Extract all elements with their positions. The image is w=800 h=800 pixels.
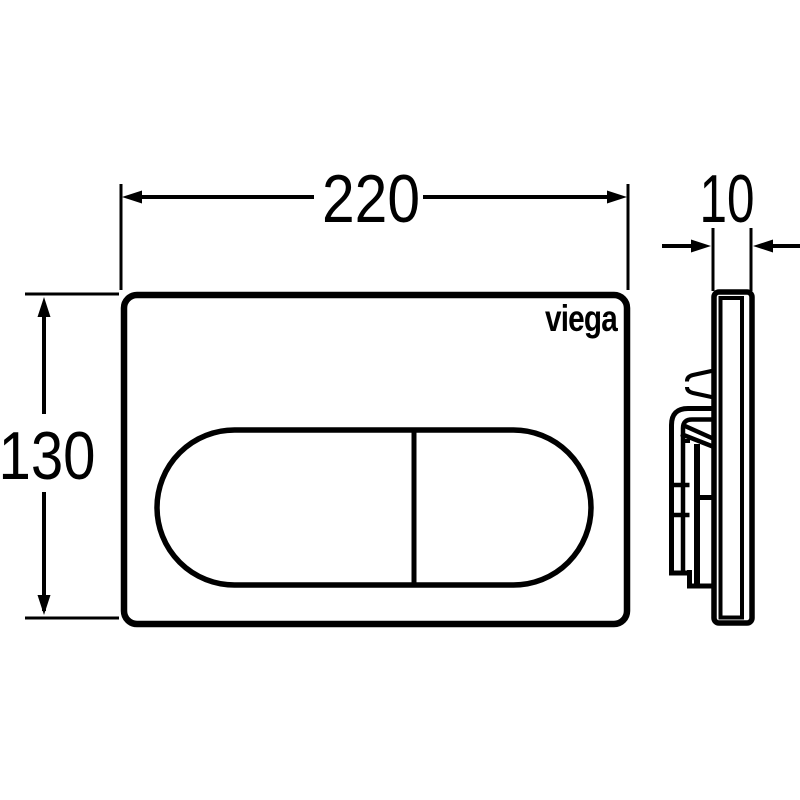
depth-arrow-left-icon bbox=[691, 240, 711, 253]
width-arrow-left-icon bbox=[122, 191, 142, 204]
width-arrow-right-icon bbox=[607, 191, 627, 204]
height-arrow-top-icon bbox=[38, 297, 51, 317]
depth-dim-label: 10 bbox=[700, 161, 755, 237]
height-dim-label: 130 bbox=[0, 418, 96, 494]
depth-arrow-right-icon bbox=[753, 240, 773, 253]
flush-plate-technical-drawing: 220 130 10 bbox=[0, 0, 800, 800]
width-dim-label: 220 bbox=[322, 161, 420, 237]
side-plate-profile-inner bbox=[721, 298, 743, 618]
height-arrow-bottom-icon bbox=[38, 595, 51, 615]
technical-drawing-page: 220 130 10 bbox=[0, 0, 800, 800]
side-view bbox=[672, 292, 753, 623]
front-view bbox=[124, 295, 627, 624]
side-bracket-outer bbox=[672, 409, 717, 574]
side-top-clip-notch bbox=[683, 382, 690, 388]
brand-logo: viega bbox=[545, 298, 618, 339]
flush-button-pill bbox=[157, 430, 591, 585]
dimension-depth bbox=[662, 228, 800, 291]
